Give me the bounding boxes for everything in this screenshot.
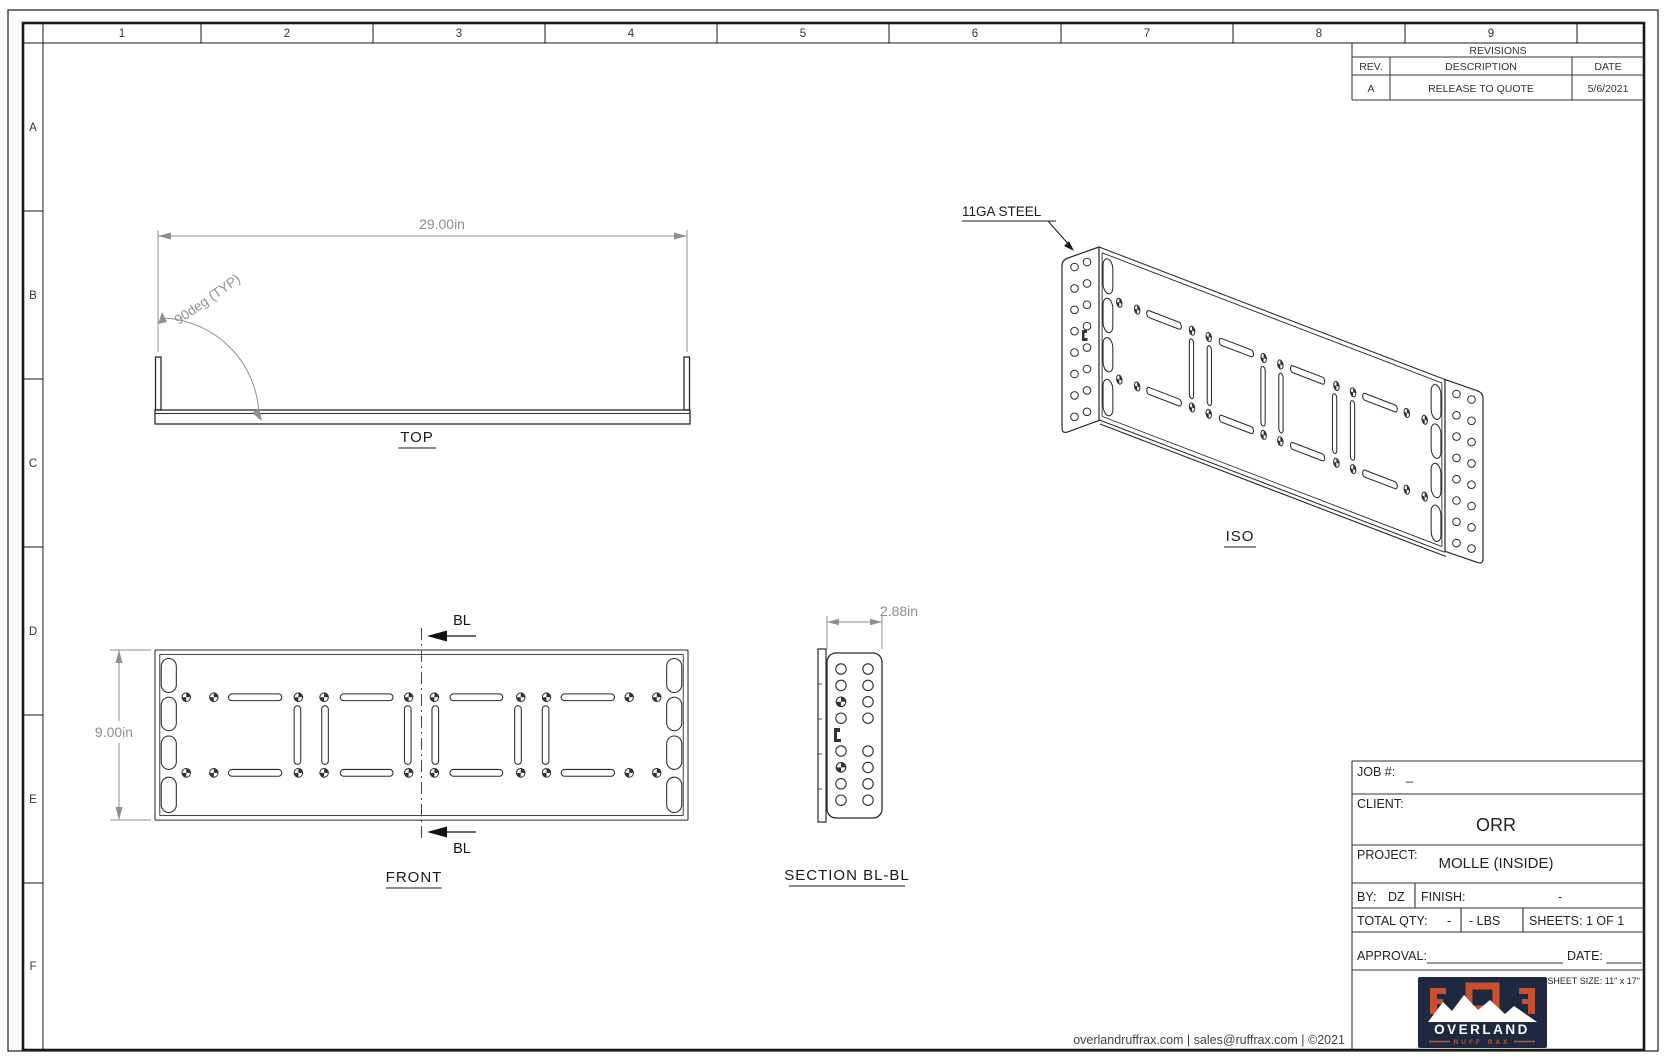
vertical-slot xyxy=(1279,373,1283,434)
vertical-slot xyxy=(1261,366,1265,427)
flange-hole-icon xyxy=(836,795,846,805)
corner-slot xyxy=(161,659,176,693)
corner-slot xyxy=(667,659,682,693)
section-view: 2.88in SECTION BL-BL xyxy=(784,603,918,886)
bend-line xyxy=(1102,253,1442,383)
corner-slot xyxy=(1103,378,1113,418)
vertical-slot xyxy=(404,706,411,765)
iso-face-pattern xyxy=(1099,247,1445,552)
flange-hole-icon xyxy=(863,713,873,723)
material-note-leader xyxy=(1048,221,1070,246)
finish-label: FINISH: xyxy=(1421,890,1465,904)
by-value: DZ xyxy=(1388,890,1405,904)
front-view: 9.00in BL BL FRONT xyxy=(95,613,688,888)
top-view: 29.00in 90deg (TYP) TOP xyxy=(155,216,690,448)
company-logo: OVERLAND RUFF RAX xyxy=(1418,977,1547,1048)
section-flange-holes xyxy=(836,664,873,806)
horizontal-slot xyxy=(561,769,614,776)
title-block: JOB #: _ CLIENT: ORR PROJECT: MOLLE (INS… xyxy=(1352,761,1644,1050)
horizontal-slot xyxy=(1363,393,1398,413)
horizontal-slot xyxy=(1363,469,1398,489)
dimension-length xyxy=(158,230,687,352)
project-label: PROJECT: xyxy=(1357,848,1417,862)
grid-col-label: 1 xyxy=(119,28,125,40)
top-view-left-flange xyxy=(156,357,162,410)
corner-slot xyxy=(1103,297,1113,335)
revisions-col-rev: REV. xyxy=(1359,61,1383,73)
horizontal-slot xyxy=(561,694,614,701)
grid-col-label: 8 xyxy=(1316,28,1322,40)
flange-hole-icon xyxy=(836,664,846,674)
grid-column-ticks xyxy=(201,23,1577,43)
iso-view: 11GA STEEL ISO xyxy=(962,204,1483,563)
grid-col-label: 3 xyxy=(456,28,462,40)
revision-row-date: 5/6/2021 xyxy=(1588,83,1629,95)
total-qty-label: TOTAL QTY: xyxy=(1357,914,1428,928)
grid-row-label: A xyxy=(29,122,37,134)
approval-date-label: DATE: xyxy=(1567,949,1603,963)
horizontal-slot xyxy=(1290,365,1324,385)
dim-arrow-top xyxy=(116,650,123,663)
revisions-col-date: DATE xyxy=(1594,61,1621,73)
section-marker-top-text: BL xyxy=(453,613,471,629)
client-label: CLIENT: xyxy=(1357,797,1404,811)
revisions-title: REVISIONS xyxy=(1469,45,1526,57)
flange-hole-icon xyxy=(863,680,873,690)
corner-slot xyxy=(1103,257,1113,295)
corner-slot xyxy=(1103,336,1113,374)
horizontal-slot xyxy=(1147,310,1182,330)
grid-col-label: 4 xyxy=(628,28,635,40)
dim-length-text: 29.00in xyxy=(419,216,465,232)
vertical-slot xyxy=(542,706,549,765)
corner-slot xyxy=(161,736,176,769)
flange-hole-icon xyxy=(863,697,873,707)
iso-left-flange xyxy=(1062,247,1099,432)
corner-slot xyxy=(1431,422,1441,460)
weight-value: - LBS xyxy=(1469,914,1500,928)
vertical-slot xyxy=(1332,393,1336,454)
vertical-slot xyxy=(1207,345,1211,406)
dim-arrow-right xyxy=(870,619,882,625)
centroid-quadrant xyxy=(836,767,841,772)
material-note-text: 11GA STEEL xyxy=(962,204,1042,219)
top-view-bar xyxy=(155,410,690,424)
horizontal-slot xyxy=(450,769,503,776)
corner-slot xyxy=(1431,503,1441,543)
corner-slot xyxy=(161,697,176,730)
dim-arrow-bottom xyxy=(116,807,123,820)
drawing-canvas: 1 2 3 4 5 6 7 8 9 A B C D E F REVISIONS … xyxy=(0,0,1666,1058)
job-value: _ xyxy=(1405,769,1414,783)
grid-col-label: 2 xyxy=(284,28,290,40)
dim-height-text: 9.00in xyxy=(95,724,133,740)
grid-col-label: 7 xyxy=(1144,28,1150,40)
flange-hole-icon xyxy=(863,762,873,772)
dim-arrow-left xyxy=(827,619,839,625)
drawing-sheet: 1 2 3 4 5 6 7 8 9 A B C D E F REVISIONS … xyxy=(0,0,1666,1058)
iso-right-flange xyxy=(1445,380,1483,563)
revision-row-rev: A xyxy=(1367,83,1374,95)
top-view-label: TOP xyxy=(400,429,434,446)
approval-label: APPROVAL: xyxy=(1357,949,1427,963)
iso-view-label: ISO xyxy=(1226,528,1255,545)
corner-slot xyxy=(1431,383,1441,421)
vertical-slot xyxy=(322,706,329,765)
section-marker-bottom-text: BL xyxy=(453,841,471,857)
grid-row-ticks xyxy=(23,211,43,883)
logo-subbrand-text: RUFF RAX xyxy=(1454,1039,1511,1046)
horizontal-slot xyxy=(1290,442,1324,462)
flange-hole-icon xyxy=(836,779,846,789)
flange-hole-icon xyxy=(836,746,846,756)
bend-line xyxy=(1102,416,1442,546)
corner-slot xyxy=(667,736,682,769)
project-value: MOLLE (INSIDE) xyxy=(1438,855,1553,872)
horizontal-slot xyxy=(1147,387,1182,407)
centroid-quadrant xyxy=(836,702,841,707)
vertical-slot xyxy=(294,706,301,765)
dim-arrow-right xyxy=(674,233,687,240)
sheets-value: SHEETS: 1 OF 1 xyxy=(1529,914,1624,928)
flange-hole-icon xyxy=(863,779,873,789)
flange-hole-icon xyxy=(836,713,846,723)
finish-value: - xyxy=(1558,890,1562,904)
centroid-quadrant xyxy=(841,763,846,768)
total-qty-value: - xyxy=(1447,914,1451,928)
corner-slot xyxy=(1431,462,1441,500)
material-note-arrow xyxy=(1064,241,1074,251)
vertical-slot xyxy=(1189,338,1193,399)
flange-hole-icon xyxy=(863,746,873,756)
grid-col-label: 9 xyxy=(1488,28,1494,40)
grid-row-label: D xyxy=(29,626,37,638)
corner-slot xyxy=(667,777,682,812)
sheet-frame xyxy=(8,10,1658,1051)
top-view-right-flange xyxy=(684,357,690,410)
section-marker-bottom: BL xyxy=(427,827,476,858)
grid-col-label: 6 xyxy=(972,28,978,40)
section-cut-strip xyxy=(818,649,826,822)
grid-row-label: E xyxy=(29,794,37,806)
grid-row-label: B xyxy=(29,290,37,302)
horizontal-slot xyxy=(1219,338,1253,358)
horizontal-slot xyxy=(340,769,393,776)
horizontal-slot xyxy=(340,694,393,701)
job-label: JOB #: xyxy=(1357,765,1395,779)
outer-border xyxy=(8,10,1658,1051)
sheet-size-note: SHEET SIZE: 11" x 17" xyxy=(1547,976,1640,986)
flange-hole-icon xyxy=(863,795,873,805)
front-view-label: FRONT xyxy=(386,869,443,886)
section-view-label: SECTION BL-BL xyxy=(784,867,910,884)
dim-angle-text: 90deg (TYP) xyxy=(172,271,243,327)
revision-row-description: RELEASE TO QUOTE xyxy=(1428,83,1534,95)
flange-hole-icon xyxy=(863,664,873,674)
iso-thickness-line xyxy=(1100,424,1446,557)
flange-hole-icon xyxy=(836,680,846,690)
section-stamp-glyph xyxy=(834,728,841,742)
grid-row-label: C xyxy=(29,458,37,470)
centroid-quadrant xyxy=(841,697,846,702)
horizontal-slot xyxy=(229,769,282,776)
grid-col-label: 5 xyxy=(800,28,806,40)
by-label: BY: xyxy=(1357,890,1376,904)
horizontal-slot xyxy=(229,694,282,701)
dimension-angle: 90deg (TYP) xyxy=(158,271,262,421)
panel-outline xyxy=(1099,247,1445,552)
logo-brand-text: OVERLAND xyxy=(1434,1022,1530,1037)
corner-slot xyxy=(667,697,682,730)
dim-arrow-left xyxy=(158,233,171,240)
horizontal-slot xyxy=(1219,414,1253,434)
corner-slot xyxy=(161,777,176,812)
grid-column-labels: 1 2 3 4 5 6 7 8 9 xyxy=(119,28,1494,40)
vertical-slot xyxy=(432,706,439,765)
footer-contact-text: overlandruffrax.com | sales@ruffrax.com … xyxy=(1073,1033,1345,1047)
revisions-table: REVISIONS REV. DESCRIPTION DATE A RELEAS… xyxy=(1352,43,1644,100)
vertical-slot xyxy=(515,706,522,765)
grid-row-label: F xyxy=(29,961,36,973)
horizontal-slot xyxy=(450,694,503,701)
vertical-slot xyxy=(1350,400,1354,461)
section-marker-top: BL xyxy=(427,613,476,642)
client-value: ORR xyxy=(1476,815,1516,835)
dim-depth-text: 2.88in xyxy=(880,603,918,619)
revisions-col-description: DESCRIPTION xyxy=(1445,61,1517,73)
